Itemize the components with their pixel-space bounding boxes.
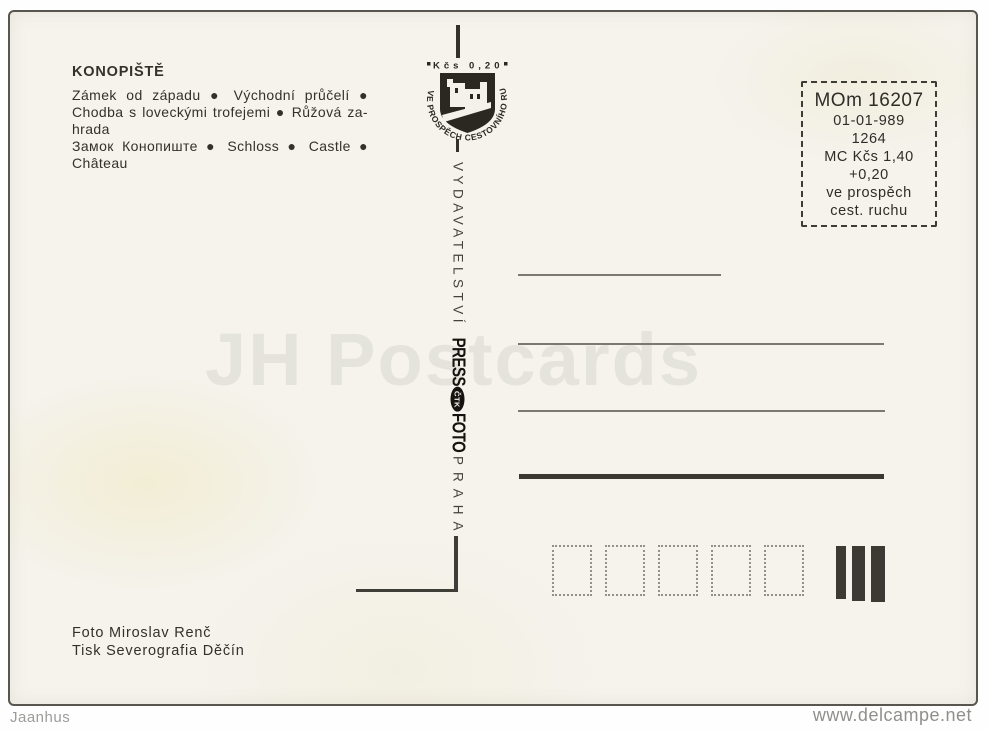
postcard-title: KONOPIŠTĚ xyxy=(72,64,368,81)
divider-corner-bracket xyxy=(356,536,458,592)
pressfoto-foto-text: FOTO xyxy=(447,413,468,452)
edition-code: 1264 xyxy=(852,130,887,148)
edition-price-box: MOm 16207 01-01-989 1264 MC Kčs 1,40 +0,… xyxy=(801,81,937,227)
postal-code-box xyxy=(711,545,751,596)
sorting-bar xyxy=(871,546,885,602)
caption-block: KONOPIŠTĚ Zámek od západu ● Východní prů… xyxy=(72,64,368,172)
marketplace-url: www.delcampe.net xyxy=(813,705,972,726)
caption-line: hrada xyxy=(72,121,368,138)
caption-line: Замок Конопиште ● Schloss ● Castle ● xyxy=(72,138,368,155)
caption-line: Zámek od západu ● Východní průčelí ● xyxy=(72,87,368,104)
address-line xyxy=(518,343,884,345)
caption-line: Château xyxy=(72,155,368,172)
edition-date: 01-01-989 xyxy=(833,112,905,130)
postal-code-box xyxy=(605,545,645,596)
stamp-value-text: Kčs 0,20 xyxy=(433,61,501,72)
divider-dash-top xyxy=(456,25,460,58)
postal-code-boxes xyxy=(552,545,804,596)
caption-line: Chodba s loveckými trofejemi ● Růžová za… xyxy=(72,104,368,121)
ctk-oval-badge: ČTK xyxy=(451,387,465,412)
postcard-back: JH Postcards KONOPIŠTĚ Zámek od západu ●… xyxy=(8,10,978,706)
tourism-stamp-icon: Kčs 0,20 VE PROSPĚCH CESTOVNÍHO RUCHU xyxy=(420,58,514,148)
surcharge-line: +0,20 xyxy=(849,166,889,184)
photo-credit: Foto Miroslav Renč xyxy=(72,625,245,643)
postal-code-box xyxy=(552,545,592,596)
pressfoto-ctk-logo: PRESS ČTK FOTO xyxy=(450,338,467,453)
postal-code-box xyxy=(658,545,698,596)
pressfoto-press-text: PRESS xyxy=(447,338,468,386)
address-line xyxy=(518,410,885,412)
address-line xyxy=(518,274,721,276)
print-credit: Tisk Severografia Děčín xyxy=(72,643,245,661)
city-vertical-text: PRAHA xyxy=(451,456,466,538)
postal-code-box xyxy=(764,545,804,596)
edition-number: MOm 16207 xyxy=(814,90,923,112)
sorting-bar xyxy=(836,546,846,599)
seller-name: Jaanhus xyxy=(10,709,70,726)
sorting-bar xyxy=(852,546,865,601)
sorting-bars xyxy=(836,546,885,602)
price-line: MC Kčs 1,40 xyxy=(824,148,914,166)
address-line-bold xyxy=(519,474,884,479)
benefit-line-1: ve prospěch xyxy=(826,184,912,202)
benefit-line-2: cest. ruchu xyxy=(830,202,908,220)
credits-block: Foto Miroslav Renč Tisk Severografia Děč… xyxy=(72,625,245,660)
publisher-vertical-text: VYDAVATELSTVÍ xyxy=(451,162,466,327)
